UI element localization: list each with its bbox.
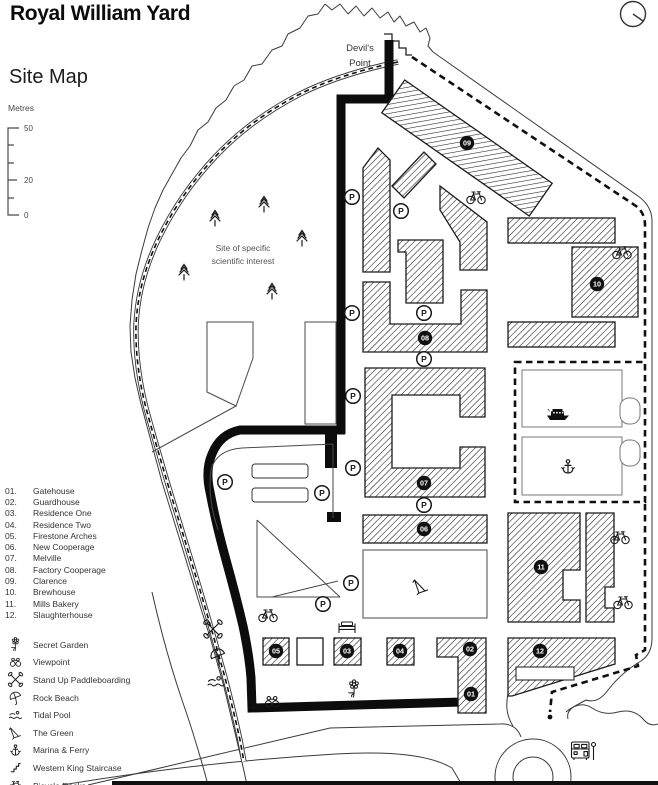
- building-badge-04: 04: [393, 644, 407, 658]
- building-north-bar: [363, 148, 390, 272]
- building-north-band: [392, 152, 436, 198]
- anchor-icon: [7, 742, 24, 759]
- legend-building-name: Brewhouse: [33, 587, 76, 597]
- map-subtitle: Site Map: [9, 66, 88, 89]
- parking-icon: P: [344, 576, 359, 591]
- legend-building-name: Guardhouse: [33, 497, 80, 507]
- legend-building-row: 06.New Cooperage: [5, 541, 185, 552]
- building-badge-11: 11: [534, 560, 548, 574]
- legend-building-number: 05.: [5, 531, 28, 541]
- stairs-icon: [7, 759, 24, 776]
- parking-icon: P: [417, 498, 432, 513]
- parking-icon: P: [346, 461, 361, 476]
- umbrella-icon: [8, 691, 23, 706]
- svg-text:07: 07: [420, 479, 428, 488]
- bicycle-icon: [7, 777, 24, 785]
- bottom-edge-bar: [112, 781, 658, 785]
- legend-feature-row: Marina & Ferry: [5, 742, 195, 760]
- pine-tree-icon: [297, 231, 307, 247]
- svg-text:P: P: [350, 391, 356, 401]
- pine-tree-icon: [267, 284, 277, 300]
- legend-building-row: 02.Guardhouse: [5, 496, 185, 507]
- svg-text:P: P: [349, 308, 355, 318]
- route-stub: [325, 430, 337, 468]
- devils-point-label: Devil's: [346, 43, 374, 54]
- legend-building-number: 10.: [5, 587, 28, 597]
- pine-tree-icon: [210, 211, 220, 227]
- legend-building-number: 02.: [5, 497, 28, 507]
- svg-text:P: P: [222, 477, 228, 487]
- svg-text:P: P: [350, 463, 356, 473]
- page-title: Royal William Yard: [10, 2, 190, 26]
- building-badge-12: 12: [533, 644, 547, 658]
- legend-building-name: New Cooperage: [33, 542, 94, 552]
- legend-building-row: 01.Gatehouse: [5, 485, 185, 496]
- building-10-brewhouse: [572, 247, 638, 317]
- legend-building-row: 03.Residence One: [5, 508, 185, 519]
- legend-building-row: 10.Brewhouse: [5, 587, 185, 598]
- legend-building-name: Residence One: [33, 508, 92, 518]
- legend-feature-label: The Green: [33, 728, 74, 738]
- parking-icon: P: [394, 204, 409, 219]
- legend-building-row: 07.Melville: [5, 553, 185, 564]
- svg-text:P: P: [349, 192, 355, 202]
- flower-icon: [7, 636, 24, 653]
- legend-feature-row: The Green: [5, 724, 195, 742]
- svg-text:09: 09: [463, 139, 471, 148]
- legend-building-number: 04.: [5, 520, 28, 530]
- legend-building-number: 06.: [5, 542, 28, 552]
- devils-point-label: Point: [349, 58, 371, 69]
- svg-text:08: 08: [421, 334, 429, 343]
- building-courtyard-block: [398, 240, 443, 303]
- svg-text:P: P: [319, 488, 325, 498]
- binoculars-icon: [10, 658, 20, 666]
- legend-feature-label: Western King Staircase: [33, 763, 122, 773]
- legend-building-name: Melville: [33, 553, 61, 563]
- legend-building-row: 09.Clarence: [5, 575, 185, 586]
- svg-text:02: 02: [466, 645, 474, 654]
- legend-feature-row: Secret Garden: [5, 636, 195, 654]
- boundary-end-dot: [548, 715, 553, 720]
- building-badge-03: 03: [340, 644, 354, 658]
- svg-text:P: P: [320, 599, 326, 609]
- stairs-icon: [11, 764, 20, 772]
- legend-feature-row: Viewpoint: [5, 654, 195, 672]
- building-11-mills-bakery: [586, 513, 614, 622]
- building-badge-07: 07: [417, 476, 431, 490]
- svg-text:11: 11: [537, 563, 545, 572]
- compass-icon: [621, 2, 646, 27]
- paddles-icon: [7, 671, 24, 688]
- legend-building-row: 08.Factory Cooperage: [5, 564, 185, 575]
- parking-icon: P: [345, 190, 360, 205]
- legend-feature-row: Stand Up Paddleboarding: [5, 671, 195, 689]
- parking-icon: P: [345, 306, 360, 321]
- building-plain-square: [297, 638, 323, 665]
- legend-feature-label: Marina & Ferry: [33, 745, 89, 755]
- svg-text:12: 12: [536, 647, 544, 656]
- building-badge-01: 01: [464, 687, 478, 701]
- legend-feature-label: Secret Garden: [33, 640, 88, 650]
- sssi-label: Site of specific: [216, 243, 272, 253]
- building-outlines: [207, 322, 336, 424]
- bicycle-icon: [259, 610, 277, 622]
- buildings-legend: 01.Gatehouse02.Guardhouse03.Residence On…: [5, 485, 185, 621]
- legend-building-row: 05.Firestone Arches: [5, 530, 185, 541]
- legend-building-row: 04.Residence Two: [5, 519, 185, 530]
- the-green-area: [363, 550, 487, 618]
- legend-feature-row: Western King Staircase: [5, 759, 195, 777]
- binoculars-icon: [7, 654, 24, 671]
- building-10-brewhouse: [508, 218, 615, 243]
- bicycle-icon: [8, 782, 22, 785]
- svg-text:P: P: [421, 354, 427, 364]
- scale-tick-label: 0: [24, 211, 29, 220]
- legend-building-name: Mills Bakery: [33, 599, 79, 609]
- building-badge-09: 09: [460, 136, 474, 150]
- legend-building-name: Firestone Arches: [33, 531, 97, 541]
- deckchair-icon: [7, 724, 24, 741]
- legend-building-name: Gatehouse: [33, 486, 75, 496]
- legend-feature-row: Tidal Pool: [5, 706, 195, 724]
- bus-icon: [572, 742, 596, 760]
- legend-feature-label: Tidal Pool: [33, 710, 70, 720]
- svg-text:01: 01: [467, 690, 475, 699]
- legend-feature-label: Stand Up Paddleboarding: [33, 675, 130, 685]
- pine-tree-icon: [179, 265, 189, 281]
- svg-text:P: P: [421, 308, 427, 318]
- sssi-label: scientific interest: [212, 256, 275, 266]
- swimmer-icon: [9, 711, 21, 718]
- scale-tick-label: 20: [24, 176, 33, 185]
- building-badge-10: 10: [590, 277, 604, 291]
- roundabout: [495, 739, 571, 785]
- legend-building-name: Clarence: [33, 576, 67, 586]
- swimmer-icon: [7, 707, 24, 724]
- bicycle-icon: [614, 597, 632, 609]
- bicycle-icon: [467, 192, 485, 204]
- building-12-notch: [516, 667, 574, 680]
- legend-building-row: 11.Mills Bakery: [5, 598, 185, 609]
- umbrella-icon: [7, 689, 24, 706]
- legend-feature-label: Bicycle Racks: [33, 781, 86, 785]
- parking-icon: P: [218, 475, 233, 490]
- legend-building-number: 07.: [5, 553, 28, 563]
- deckchair-icon: [9, 728, 20, 739]
- legend-building-name: Residence Two: [33, 520, 91, 530]
- paddles-icon: [7, 672, 22, 687]
- svg-text:05: 05: [272, 647, 280, 656]
- site-map-page: Devil's Point Site of specific scientifi…: [0, 0, 658, 785]
- scale-unit-label: Metres: [8, 103, 34, 113]
- marina-basins: [522, 370, 640, 495]
- parking-icon: P: [417, 352, 432, 367]
- legend-building-number: 01.: [5, 486, 28, 496]
- legend-building-number: 11.: [5, 599, 28, 609]
- parking-icon: P: [315, 486, 330, 501]
- anchor-icon: [10, 745, 20, 755]
- legend-building-name: Factory Cooperage: [33, 565, 106, 575]
- building-10-brewhouse: [508, 322, 615, 347]
- legend-feature-row: Rock Beach: [5, 689, 195, 707]
- building-north-band: [440, 186, 487, 270]
- scale-tick-label: 50: [24, 124, 33, 133]
- svg-text:10: 10: [593, 280, 601, 289]
- svg-text:04: 04: [396, 647, 404, 656]
- building-badge-05: 05: [269, 644, 283, 658]
- flower-icon: [349, 680, 359, 697]
- legend-building-number: 08.: [5, 565, 28, 575]
- flower-icon: [11, 638, 18, 651]
- svg-text:P: P: [398, 206, 404, 216]
- legend-building-number: 12.: [5, 610, 28, 620]
- pine-tree-icon: [259, 197, 269, 213]
- scale-bar: Metres 50 20 0: [8, 103, 34, 220]
- building-badge-02: 02: [463, 642, 477, 656]
- building-badge-08: 08: [418, 331, 432, 345]
- bed-icon: [339, 622, 355, 633]
- legend-feature-label: Viewpoint: [33, 657, 70, 667]
- features-legend: Secret GardenViewpointStand Up Paddleboa…: [5, 636, 195, 785]
- route-stub: [327, 512, 341, 522]
- legend-building-name: Slaughterhouse: [33, 610, 93, 620]
- legend-building-number: 09.: [5, 576, 28, 586]
- legend-feature-label: Rock Beach: [33, 693, 79, 703]
- legend-building-row: 12.Slaughterhouse: [5, 609, 185, 620]
- building-badge-06: 06: [417, 522, 431, 536]
- svg-text:06: 06: [420, 525, 428, 534]
- parking-icon: P: [346, 389, 361, 404]
- svg-text:P: P: [348, 578, 354, 588]
- svg-text:03: 03: [343, 647, 351, 656]
- svg-text:P: P: [421, 500, 427, 510]
- legend-building-number: 03.: [5, 508, 28, 518]
- parking-icon: P: [417, 306, 432, 321]
- parking-icon: P: [316, 597, 331, 612]
